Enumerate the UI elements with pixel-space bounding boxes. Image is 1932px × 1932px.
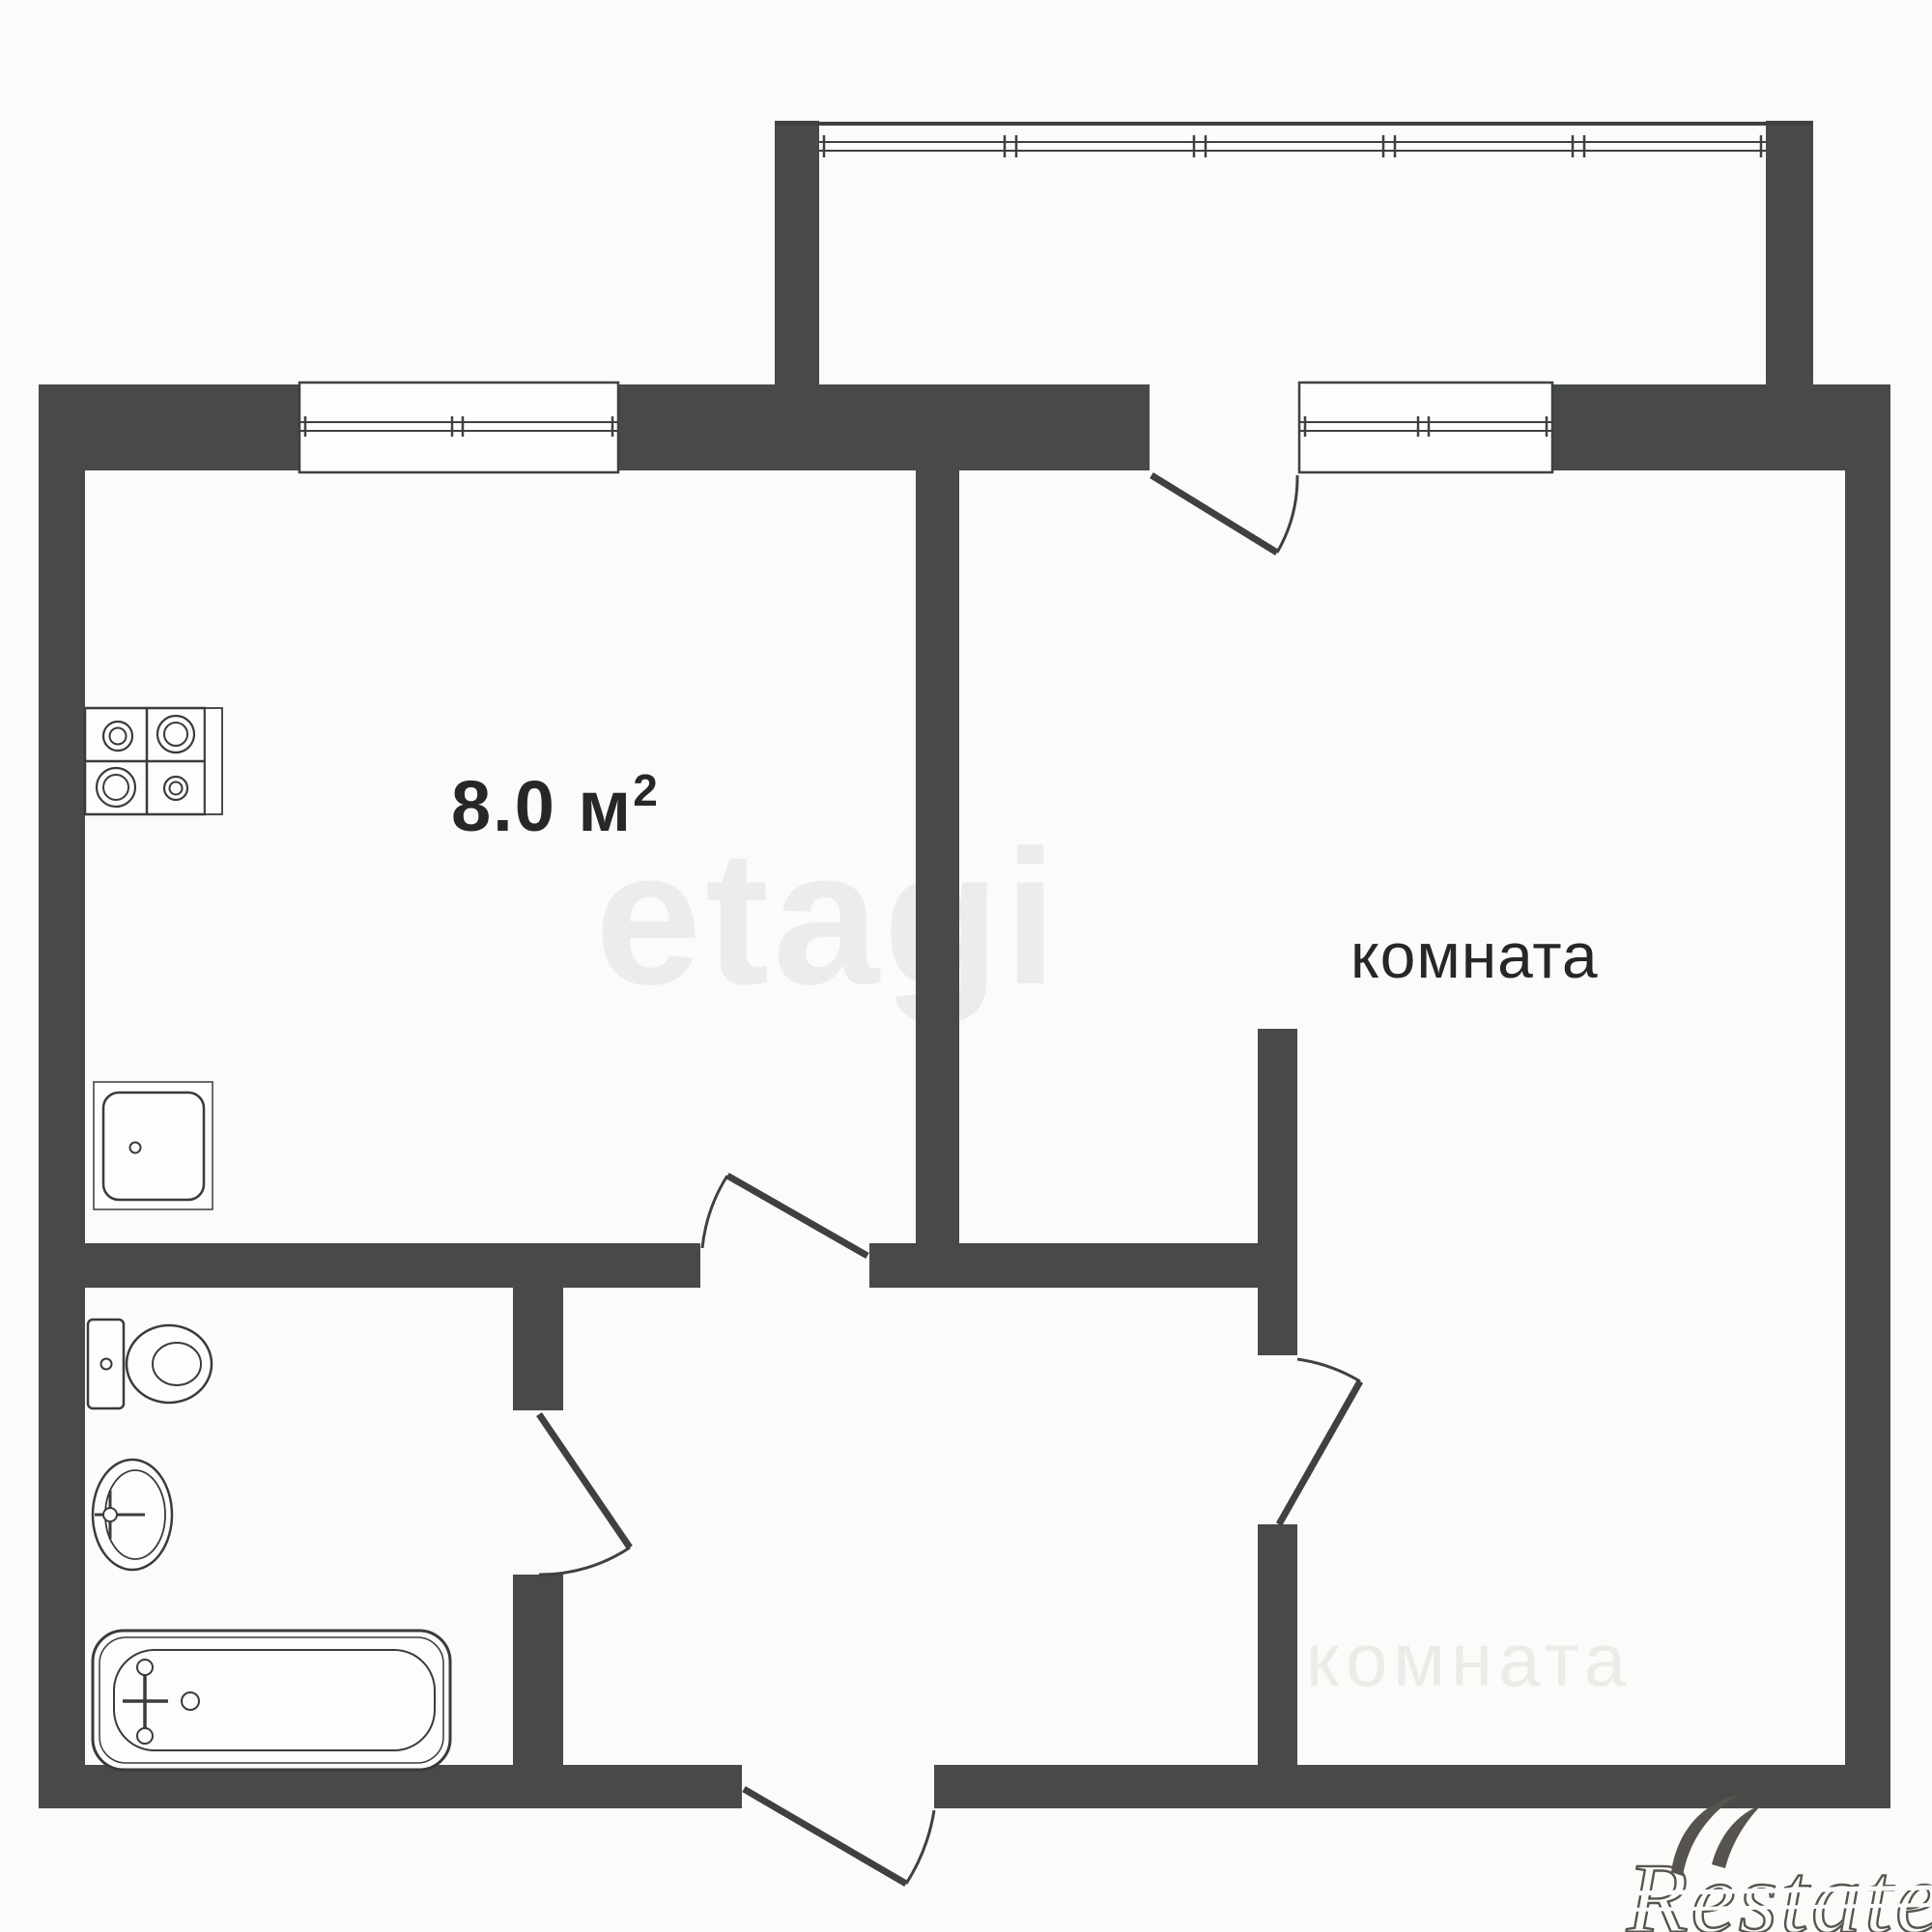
wall-bathroom-right-upper — [513, 1288, 563, 1410]
wall-top-right-segment — [1552, 384, 1890, 470]
wall-kitchen-room-divider — [916, 470, 959, 1288]
stove-icon — [85, 708, 222, 814]
watermark-ghost-room-label: комната — [1306, 1617, 1632, 1702]
wall-hallway-right-upper — [1258, 1288, 1297, 1355]
toilet-icon — [88, 1320, 212, 1408]
kitchen-window-icon — [299, 383, 618, 472]
watermark-etagi: etagi — [595, 810, 1061, 1024]
wall-room-stub — [1258, 1029, 1297, 1243]
kitchen-area-unit: м — [556, 766, 633, 846]
wall-hallway-top-right — [869, 1243, 1297, 1288]
kitchen-sink-icon — [94, 1082, 213, 1209]
wall-hallway-top-left — [85, 1243, 700, 1288]
wall-bottom-right-segment — [934, 1765, 1890, 1808]
wall-balcony-left — [775, 121, 819, 384]
floor-plan-page: etagi комната — [0, 0, 1932, 1932]
kitchen-area-value: 8.0 — [451, 766, 556, 846]
wall-bottom-left-segment — [39, 1765, 742, 1808]
room-window-icon — [1299, 383, 1552, 472]
room-label: комната — [1350, 920, 1599, 991]
wall-outer-right — [1845, 384, 1890, 1808]
wall-outer-left — [39, 384, 85, 1808]
kitchen-area-label: 8.0 м2 — [451, 765, 660, 846]
wall-balcony-right — [1766, 121, 1813, 384]
washbasin-icon — [93, 1460, 172, 1570]
floor-plan-drawing: etagi комната — [0, 0, 1932, 1932]
bathtub-icon — [93, 1631, 450, 1770]
wall-bathroom-right-lower — [513, 1575, 563, 1765]
wall-top-middle-segment — [618, 384, 1150, 470]
wall-hallway-right-lower — [1258, 1524, 1297, 1765]
kitchen-area-superscript: 2 — [633, 765, 660, 815]
